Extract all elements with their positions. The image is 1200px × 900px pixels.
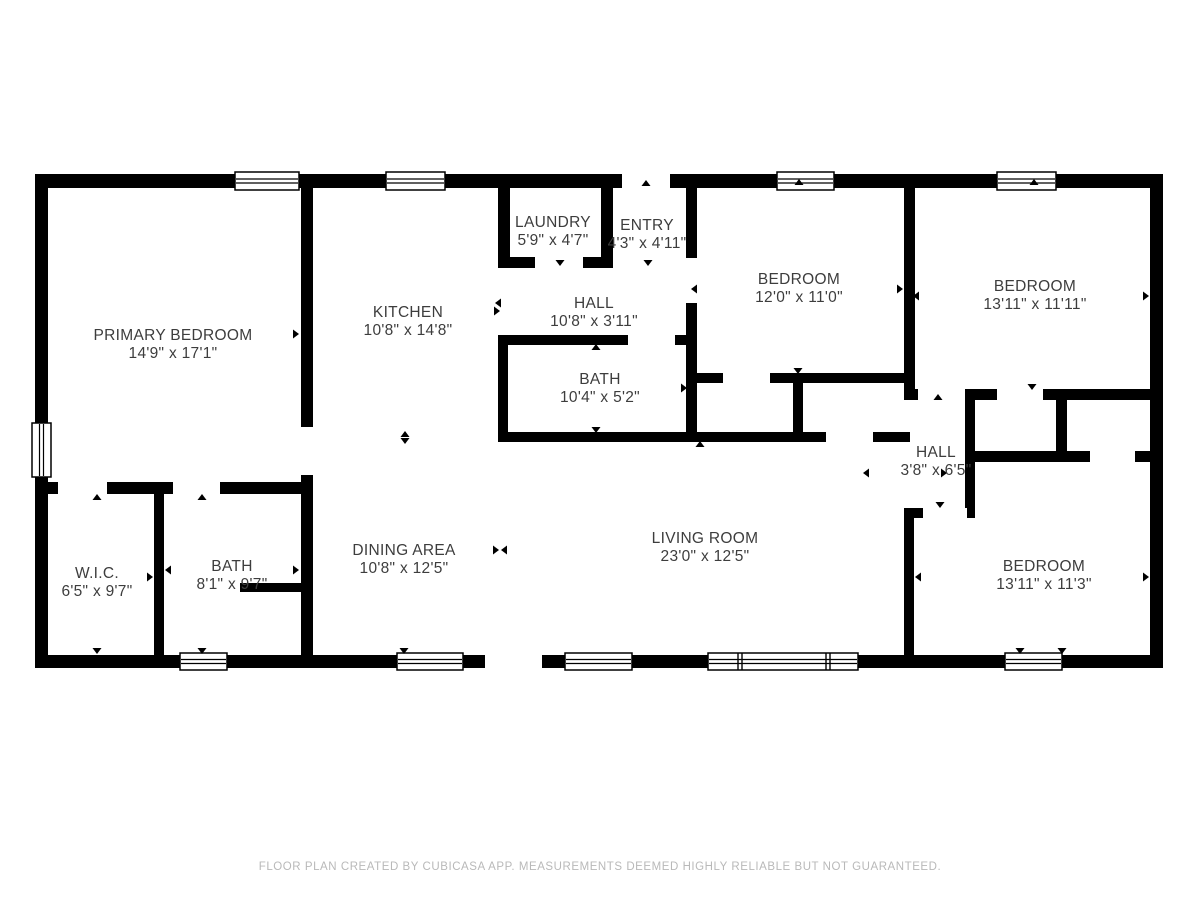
direction-marker — [644, 260, 653, 266]
wall — [498, 345, 508, 442]
direction-marker — [1143, 573, 1149, 582]
wall — [498, 188, 510, 267]
direction-marker — [93, 648, 102, 654]
room-name: BATH — [579, 371, 620, 388]
direction-marker — [501, 546, 507, 555]
room-name: HALL — [574, 295, 614, 312]
room-dimensions: 13'11" x 11'3" — [996, 576, 1092, 594]
room-dimensions: 5'9" x 4'7" — [515, 232, 591, 250]
window — [386, 172, 445, 190]
wall — [1150, 174, 1163, 668]
door-opening — [1090, 451, 1135, 462]
door-opening — [723, 373, 770, 383]
room-dimensions: 10'8" x 12'5" — [352, 560, 455, 578]
door-opening — [301, 427, 313, 475]
window — [565, 653, 632, 670]
room-label-bath-2: BATH8'1" x 9'7" — [196, 558, 267, 594]
direction-marker — [401, 431, 410, 437]
room-name: BEDROOM — [1003, 558, 1085, 575]
footer-disclaimer: FLOOR PLAN CREATED BY CUBICASA APP. MEAS… — [0, 861, 1200, 873]
direction-marker — [293, 566, 299, 575]
room-dimensions: 13'11" x 11'11" — [983, 296, 1086, 314]
direction-marker — [165, 566, 171, 575]
wall — [904, 518, 914, 655]
door-opening — [628, 335, 675, 345]
window — [235, 172, 299, 190]
room-dimensions: 12'0" x 11'0" — [755, 289, 843, 307]
direction-marker — [1143, 292, 1149, 301]
room-dimensions: 14'9" x 17'1" — [94, 345, 253, 363]
room-dimensions: 23'0" x 12'5" — [652, 548, 759, 566]
room-name: DINING AREA — [352, 542, 455, 559]
room-name: BEDROOM — [758, 271, 840, 288]
window — [777, 172, 834, 190]
door-opening — [686, 258, 697, 303]
room-name: HALL — [916, 444, 956, 461]
wall — [35, 174, 1163, 188]
window — [180, 653, 227, 670]
room-label-bedroom-2: BEDROOM13'11" x 11'11" — [983, 278, 1086, 314]
door-opening — [923, 508, 967, 518]
direction-marker — [494, 307, 500, 316]
window — [32, 423, 51, 477]
room-dimensions: 10'8" x 14'8" — [364, 322, 453, 340]
door-opening — [918, 389, 965, 400]
room-name: KITCHEN — [373, 304, 443, 321]
direction-marker — [93, 494, 102, 500]
room-label-entry: ENTRY4'3" x 4'11" — [608, 217, 687, 253]
floorplan-svg — [0, 0, 1200, 900]
wall — [686, 373, 910, 383]
direction-marker — [495, 299, 501, 308]
direction-marker — [936, 502, 945, 508]
room-dimensions: 8'1" x 9'7" — [196, 576, 267, 594]
direction-marker — [198, 494, 207, 500]
room-label-wic: W.I.C.6'5" x 9'7" — [61, 565, 132, 601]
door-opening — [58, 482, 107, 494]
room-label-dining-area: DINING AREA10'8" x 12'5" — [352, 542, 455, 578]
room-name: LAUNDRY — [515, 214, 591, 231]
room-name: LIVING ROOM — [652, 530, 759, 547]
room-label-living-room: LIVING ROOM23'0" x 12'5" — [652, 530, 759, 566]
room-name: BATH — [211, 558, 252, 575]
room-label-bedroom-3: BEDROOM13'11" x 11'3" — [996, 558, 1092, 594]
room-dimensions: 6'5" x 9'7" — [61, 583, 132, 601]
wall — [686, 188, 697, 442]
room-label-kitchen: KITCHEN10'8" x 14'8" — [364, 304, 453, 340]
room-dimensions: 10'8" x 3'11" — [550, 313, 638, 331]
window — [997, 172, 1056, 190]
room-dimensions: 10'4" x 5'2" — [560, 389, 640, 407]
window — [1005, 653, 1062, 670]
door-opening — [485, 655, 542, 668]
room-label-hall-2: HALL3'8" x 6'5" — [900, 444, 971, 480]
room-name: PRIMARY BEDROOM — [94, 327, 253, 344]
room-label-bedroom-1: BEDROOM12'0" x 11'0" — [755, 271, 843, 307]
direction-marker — [493, 546, 499, 555]
wall — [35, 174, 48, 668]
room-dimensions: 4'3" x 4'11" — [608, 235, 687, 253]
room-name: W.I.C. — [75, 565, 119, 582]
wall — [1056, 400, 1067, 451]
floorplan: PRIMARY BEDROOM14'9" x 17'1"KITCHEN10'8"… — [0, 0, 1200, 900]
wall — [793, 383, 803, 432]
room-label-bath: BATH10'4" x 5'2" — [560, 371, 640, 407]
direction-marker — [915, 573, 921, 582]
direction-marker — [147, 573, 153, 582]
window — [708, 653, 858, 670]
room-name: BEDROOM — [994, 278, 1076, 295]
room-label-laundry: LAUNDRY5'9" x 4'7" — [515, 214, 591, 250]
direction-marker — [293, 330, 299, 339]
room-dimensions: 3'8" x 6'5" — [900, 462, 971, 480]
direction-marker — [401, 438, 410, 444]
direction-marker — [897, 285, 903, 294]
room-label-primary-bedroom: PRIMARY BEDROOM14'9" x 17'1" — [94, 327, 253, 363]
room-label-hall: HALL10'8" x 3'11" — [550, 295, 638, 331]
wall — [301, 188, 313, 655]
door-opening — [173, 482, 220, 494]
door-opening — [826, 432, 873, 442]
wall — [904, 188, 915, 400]
window — [397, 653, 463, 670]
direction-marker — [863, 469, 869, 478]
door-opening — [997, 389, 1043, 400]
room-name: ENTRY — [620, 217, 674, 234]
wall — [154, 494, 164, 655]
